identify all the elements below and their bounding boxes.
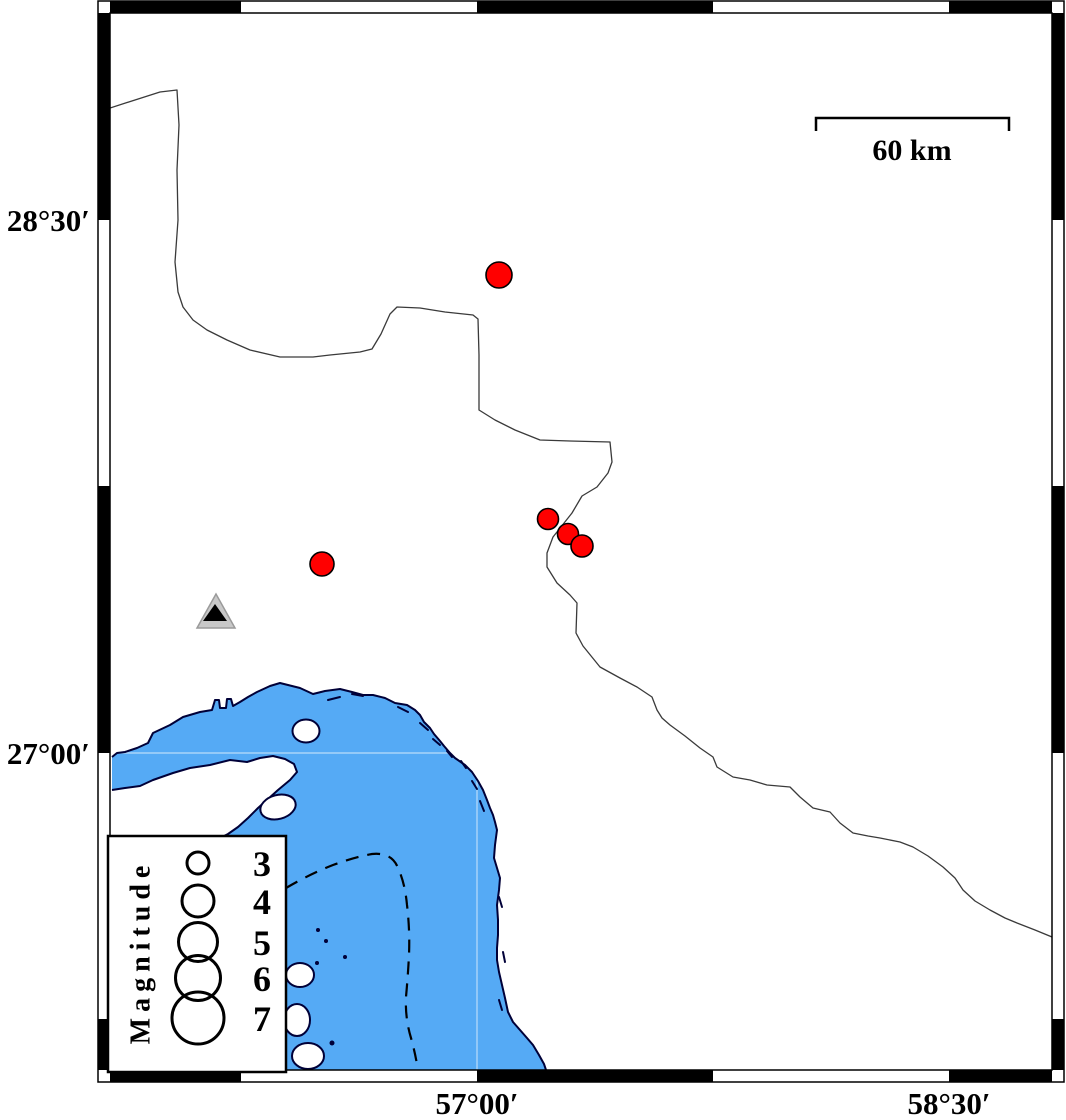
lat-label-27-00: 27°00′ [7,736,90,771]
island-round [293,720,320,743]
legend-title: Magnitude [125,860,156,1045]
legend-magnitude-label: 5 [253,923,271,963]
seismicity-map-figure: 60 km Magnitude 34567 28°30′ 27°00′ 57°0… [0,0,1066,1120]
archipelago-island [286,963,314,987]
legend-magnitude-label: 3 [253,844,271,884]
archipelago-island [284,1004,310,1036]
earthquake-marker [486,262,512,288]
earthquake-events-layer [310,262,593,576]
scale-bar: 60 km [816,118,1009,167]
legend-magnitude-label: 4 [253,882,271,922]
map-svg: 60 km Magnitude 34567 28°30′ 27°00′ 57°0… [0,0,1066,1120]
earthquake-marker [571,535,593,557]
earthquake-marker [538,509,559,530]
archipelago-island [292,1043,324,1069]
legend-magnitude-label: 6 [253,959,271,999]
legend-box: Magnitude 34567 [108,836,286,1072]
station-marker [197,594,235,628]
legend-magnitude-label: 7 [253,999,271,1039]
province-boundary-line [110,90,1052,937]
earthquake-marker [310,552,334,576]
scale-bar-bracket [816,118,1009,131]
lat-label-28-30: 28°30′ [7,203,90,238]
scale-bar-label: 60 km [872,134,951,167]
lon-label-58-30: 58°30′ [907,1086,990,1120]
lon-label-57-00: 57°00′ [435,1086,518,1120]
legend-labels: 34567 [253,844,271,1039]
